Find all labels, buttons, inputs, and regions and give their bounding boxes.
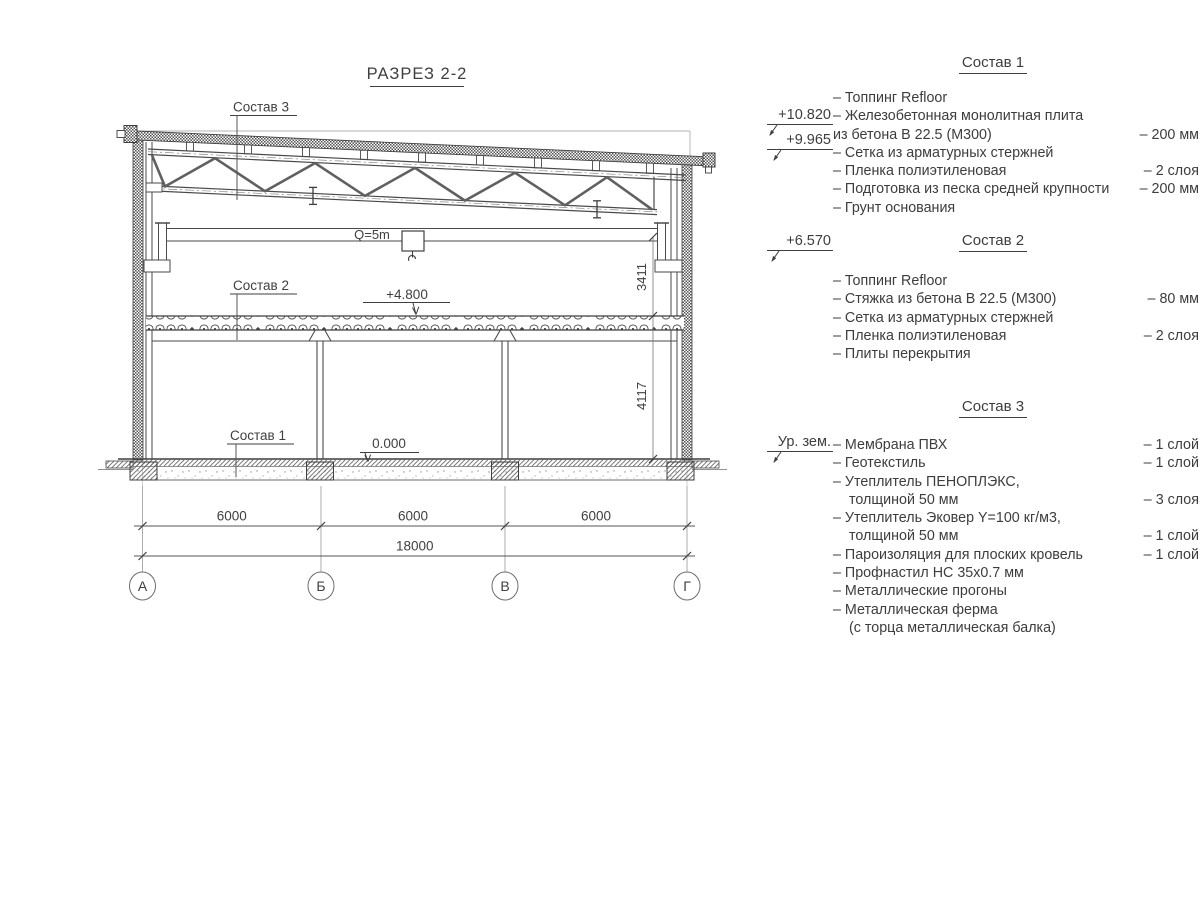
material-item: – Металлические прогоны	[833, 582, 1199, 600]
level-marker-label: +10.820	[767, 107, 833, 125]
floor-slab-4800	[146, 316, 684, 341]
material-thickness: – 1 слой	[1144, 527, 1199, 545]
level-marker-9965: +9.965	[745, 132, 833, 150]
callout-sostav-3: Состав 3	[233, 100, 289, 115]
material-item: – Утеплитель Эковер Y=100 кг/м3,	[833, 509, 1199, 527]
crane-capacity-label: Q=5m	[354, 227, 390, 242]
dim-3411: 3411	[634, 263, 649, 291]
level-arrow-icon	[767, 452, 783, 467]
material-item: – Геотекстиль– 1 слой	[833, 454, 1199, 472]
level-marker-label: +6.570	[767, 233, 833, 251]
material-item: – Грунт основания	[833, 199, 1199, 217]
roof-assembly	[117, 126, 715, 174]
level-arrow-icon	[765, 251, 781, 266]
callout-sostav-1: Состав 1	[230, 428, 286, 443]
legend-title-sostav-2: Состав 2	[923, 232, 1063, 252]
dimensions-vertical: 3411 4117	[634, 233, 657, 463]
material-item: – Пленка полиэтиленовая– 2 слоя	[833, 327, 1199, 345]
material-item: – Профнастил НС 35х0.7 мм	[833, 564, 1199, 582]
ground-floor	[98, 459, 727, 480]
material-item: – Пароизоляция для плоских кровель– 1 сл…	[833, 546, 1199, 564]
columns	[309, 331, 516, 460]
material-item: – Утеплитель ПЕНОПЛЭКС,	[833, 473, 1199, 491]
material-item: – Металлическая ферма	[833, 601, 1199, 619]
elevation-marks: +4.800 0.000	[360, 287, 450, 462]
dim-total: 18000	[396, 539, 434, 554]
walls	[133, 140, 692, 486]
material-item: – Топпинг Refloor	[833, 272, 1199, 290]
level-marker-ground: Ур. зем.	[745, 434, 833, 452]
level-marker-label: Ур. зем.	[767, 434, 833, 452]
axis-bubbles: А Б В Г	[130, 572, 701, 600]
material-item: – Топпинг Refloor	[833, 89, 1199, 107]
truss-web	[152, 155, 652, 209]
level-arrow-icon	[767, 150, 783, 165]
axis-label-v: В	[500, 578, 509, 594]
material-list-sostav-3: – Мембрана ПВХ– 1 слой – Геотекстиль– 1 …	[833, 436, 1199, 637]
apron-right	[692, 461, 719, 468]
callout-sostav-2: Состав 2	[233, 278, 289, 293]
truss-bearing-plate	[146, 183, 162, 192]
material-thickness: – 200 мм	[1140, 126, 1199, 144]
axis-label-g: Г	[683, 578, 691, 594]
level-marker-6570: +6.570	[745, 233, 833, 251]
material-thickness: – 2 слоя	[1144, 327, 1199, 345]
material-item: – Железобетонная монолитная плита	[833, 107, 1199, 125]
crane-beam: Q=5m	[144, 223, 682, 272]
material-thickness: – 80 мм	[1148, 290, 1199, 308]
material-item: – Сетка из арматурных стержней	[833, 309, 1199, 327]
drawing-sheet: РАЗРЕЗ 2-2	[0, 0, 1200, 900]
material-item: – Стяжка из бетона В 22.5 (М300)– 80 мм	[833, 290, 1199, 308]
material-item: – Подготовка из песка средней крупности–…	[833, 180, 1199, 198]
legend-title-sostav-3: Состав 3	[923, 398, 1063, 418]
dimensions-horizontal: 6000 6000 6000 18000	[134, 486, 695, 572]
elevation-0000: 0.000	[372, 436, 406, 451]
material-item: – Плиты перекрытия	[833, 345, 1199, 363]
level-marker-label: +9.965	[767, 132, 833, 150]
material-item: толщиной 50 мм– 3 слоя	[833, 491, 1199, 509]
axis-label-b: Б	[316, 578, 325, 594]
dim-4117: 4117	[634, 382, 649, 410]
material-item: (с торца металлическая балка)	[833, 619, 1199, 637]
dim-bay-1: 6000	[217, 509, 247, 524]
drawing-title: РАЗРЕЗ 2-2	[367, 65, 468, 83]
crane-corbel-right	[655, 260, 682, 272]
material-thickness: – 1 слой	[1144, 546, 1199, 564]
material-item: из бетона В 22.5 (М300)– 200 мм	[833, 126, 1199, 144]
crane-trolley	[402, 231, 424, 261]
material-item: толщиной 50 мм– 1 слой	[833, 527, 1199, 545]
material-list-sostav-1: – Топпинг Refloor – Железобетонная монол…	[833, 89, 1199, 217]
level-arrow-icon	[413, 303, 419, 315]
legend-title-sostav-1: Состав 1	[923, 54, 1063, 74]
material-thickness: – 200 мм	[1140, 180, 1199, 198]
axis-label-a: А	[138, 578, 148, 594]
material-thickness: – 3 слоя	[1144, 491, 1199, 509]
material-thickness: – 2 слоя	[1144, 162, 1199, 180]
chord-splice-bolts	[309, 187, 601, 217]
elevation-4800: +4.800	[386, 287, 428, 302]
apron-left	[106, 461, 133, 468]
dim-bay-3: 6000	[581, 509, 611, 524]
material-item: – Сетка из арматурных стержней	[833, 144, 1199, 162]
section-drawing: РАЗРЕЗ 2-2	[0, 0, 760, 660]
material-item: – Пленка полиэтиленовая– 2 слоя	[833, 162, 1199, 180]
level-marker-10820: +10.820	[745, 107, 833, 125]
material-item: – Мембрана ПВХ– 1 слой	[833, 436, 1199, 454]
material-list-sostav-2: – Топпинг Refloor – Стяжка из бетона В 2…	[833, 272, 1199, 363]
dim-bay-2: 6000	[398, 509, 428, 524]
material-thickness: – 1 слой	[1144, 454, 1199, 472]
material-thickness: – 1 слой	[1144, 436, 1199, 454]
crane-corbel-left	[144, 260, 170, 272]
